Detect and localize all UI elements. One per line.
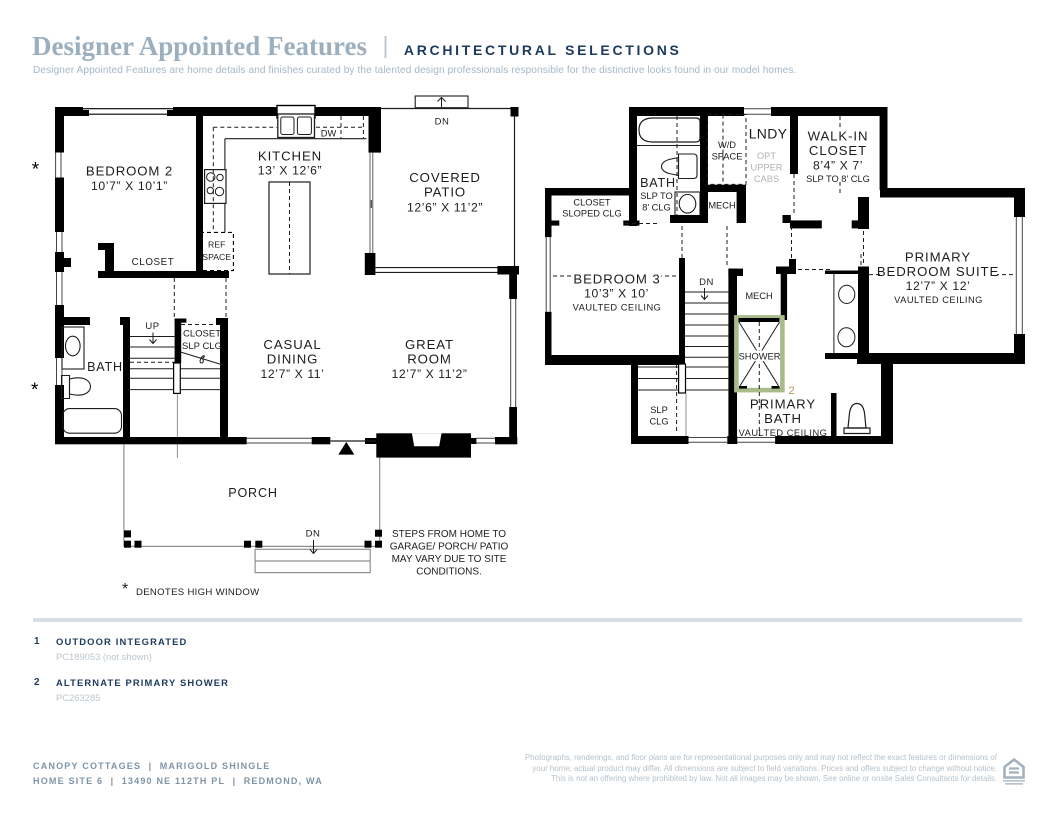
- svg-text:VAULTED CEILING: VAULTED CEILING: [573, 303, 662, 313]
- svg-text:GARAGE/ PORCH/ PATIO: GARAGE/ PORCH/ PATIO: [390, 542, 509, 553]
- svg-text:UPPER: UPPER: [750, 163, 782, 173]
- svg-text:ROOM: ROOM: [407, 352, 452, 367]
- svg-text:VAULTED CEILING: VAULTED CEILING: [894, 295, 983, 305]
- svg-text:12’7” X 12’: 12’7” X 12’: [906, 279, 971, 293]
- svg-text:CABS: CABS: [754, 174, 779, 184]
- svg-text:BATH: BATH: [87, 360, 123, 374]
- svg-text:CLOSET: CLOSET: [573, 198, 611, 208]
- svg-text:STEPS FROM HOME TO: STEPS FROM HOME TO: [392, 529, 506, 540]
- svg-text:MECH: MECH: [708, 201, 735, 211]
- svg-text:CLOSET: CLOSET: [809, 143, 867, 158]
- svg-text:CONDITIONS.: CONDITIONS.: [416, 567, 482, 578]
- svg-text:SLP: SLP: [650, 405, 668, 415]
- svg-text:10’3” X 10’: 10’3” X 10’: [584, 287, 649, 301]
- svg-text:DN: DN: [699, 277, 714, 288]
- svg-text:CLG: CLG: [649, 417, 668, 427]
- svg-text:8’4” X 7’: 8’4” X 7’: [813, 159, 863, 173]
- svg-text:OPT: OPT: [757, 151, 776, 161]
- svg-text:SPACE: SPACE: [712, 152, 743, 162]
- svg-text:PRIMARY: PRIMARY: [750, 397, 816, 412]
- svg-text:PATIO: PATIO: [424, 185, 466, 200]
- svg-text:*: *: [31, 380, 39, 401]
- svg-text:BEDROOM SUITE: BEDROOM SUITE: [877, 264, 999, 279]
- svg-text:BATH: BATH: [640, 176, 676, 190]
- svg-text:10’7” X 10’1”: 10’7” X 10’1”: [91, 179, 168, 193]
- svg-text:WALK-IN: WALK-IN: [808, 129, 869, 144]
- svg-text:CASUAL: CASUAL: [263, 337, 321, 352]
- svg-text:*: *: [32, 160, 40, 181]
- svg-text:13’ X 12’6”: 13’ X 12’6”: [258, 164, 322, 178]
- svg-text:MECH: MECH: [745, 291, 772, 301]
- svg-text:SLOPED CLG: SLOPED CLG: [562, 209, 621, 219]
- svg-text:REF: REF: [208, 240, 225, 250]
- svg-text:SLP TO 8’ CLG: SLP TO 8’ CLG: [806, 174, 870, 184]
- svg-text:DENOTES HIGH WINDOW: DENOTES HIGH WINDOW: [136, 587, 260, 598]
- svg-text:DN: DN: [435, 117, 450, 128]
- svg-text:SPACE: SPACE: [202, 252, 231, 262]
- svg-text:MAY VARY DUE TO SITE: MAY VARY DUE TO SITE: [392, 554, 507, 565]
- svg-text:8’ CLG: 8’ CLG: [642, 203, 671, 213]
- svg-text:*: *: [122, 581, 128, 598]
- svg-text:KITCHEN: KITCHEN: [258, 149, 322, 164]
- svg-text:PRIMARY: PRIMARY: [905, 250, 971, 265]
- svg-text:DW: DW: [321, 129, 337, 139]
- svg-text:12’7” X 11’2”: 12’7” X 11’2”: [392, 367, 468, 381]
- svg-text:SLP CLG: SLP CLG: [182, 341, 222, 352]
- svg-text:CLOSET: CLOSET: [132, 257, 175, 268]
- svg-text:12’6” X 11’2”: 12’6” X 11’2”: [407, 201, 483, 215]
- svg-text:SLP TO: SLP TO: [640, 191, 673, 201]
- svg-text:W/D: W/D: [718, 140, 736, 150]
- svg-text:BATH: BATH: [764, 411, 802, 426]
- svg-text:CLOSET: CLOSET: [183, 329, 221, 340]
- svg-text:BEDROOM 3: BEDROOM 3: [573, 272, 660, 287]
- svg-text:BEDROOM 2: BEDROOM 2: [86, 164, 173, 179]
- svg-text:2: 2: [788, 385, 794, 397]
- svg-text:VAULTED CEILING: VAULTED CEILING: [739, 428, 828, 438]
- svg-text:DN: DN: [306, 529, 321, 540]
- svg-text:12’7” X 11’: 12’7” X 11’: [261, 367, 325, 381]
- svg-text:COVERED: COVERED: [409, 170, 481, 185]
- svg-text:DINING: DINING: [267, 352, 319, 367]
- svg-text:GREAT: GREAT: [405, 337, 454, 352]
- svg-text:PORCH: PORCH: [228, 486, 277, 500]
- svg-text:LNDY: LNDY: [749, 126, 788, 142]
- svg-text:SHOWER: SHOWER: [739, 352, 781, 362]
- svg-text:UP: UP: [145, 321, 159, 332]
